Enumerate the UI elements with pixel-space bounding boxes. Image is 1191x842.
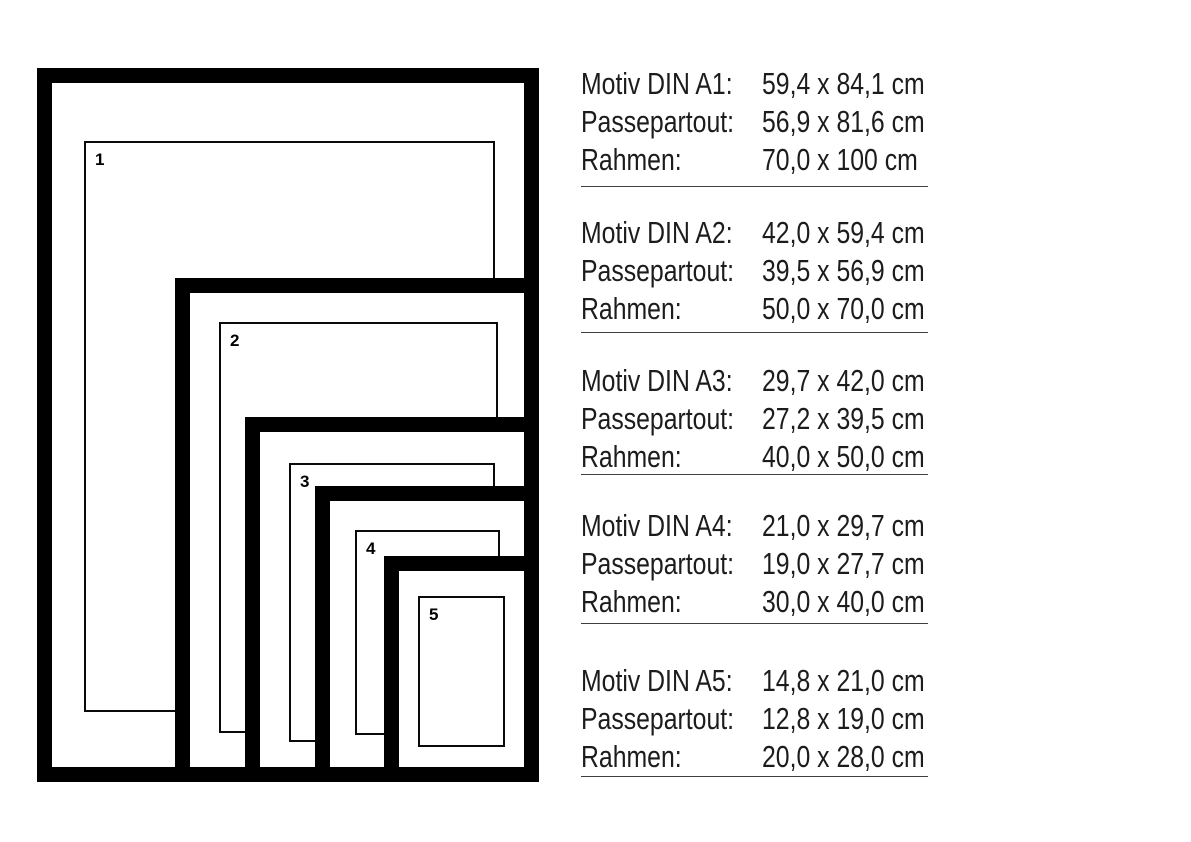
spec-label: Passepartout: (581, 545, 772, 583)
spec-row: Motiv DIN A1: 59,4 x 84,1 cm (581, 65, 928, 103)
spec-label: Motiv DIN A2: (581, 214, 771, 252)
spec-row: Motiv DIN A4: 21,0 x 29,7 cm (581, 507, 928, 545)
spec-block-a3: Motiv DIN A3: 29,7 x 42,0 cm Passepartou… (581, 362, 928, 476)
spec-label: Rahmen: (581, 583, 707, 621)
spec-label: Rahmen: (581, 290, 707, 328)
spec-row: Passepartout: 39,5 x 56,9 cm (581, 252, 928, 290)
spec-value: 12,8 x 19,0 cm (762, 700, 965, 738)
spec-row: Rahmen: 50,0 x 70,0 cm (581, 290, 928, 328)
frame-number-4: 4 (366, 540, 375, 557)
spec-row: Rahmen: 70,0 x 100 cm (581, 141, 928, 179)
spec-block-a4: Motiv DIN A4: 21,0 x 29,7 cm Passepartou… (581, 507, 928, 621)
spec-value: 70,0 x 100 cm (762, 141, 957, 179)
spec-row: Motiv DIN A2: 42,0 x 59,4 cm (581, 214, 928, 252)
separator-line-1 (581, 186, 928, 187)
spec-value: 56,9 x 81,6 cm (762, 103, 965, 141)
frame-number-3: 3 (300, 473, 309, 490)
spec-row: Passepartout: 12,8 x 19,0 cm (581, 700, 928, 738)
spec-value: 21,0 x 29,7 cm (762, 507, 965, 545)
motiv-area-5: 5 (418, 596, 505, 747)
spec-label: Passepartout: (581, 700, 772, 738)
spec-value: 27,2 x 39,5 cm (762, 400, 965, 438)
spec-value: 29,7 x 42,0 cm (762, 362, 965, 400)
spec-row: Motiv DIN A5: 14,8 x 21,0 cm (581, 662, 928, 700)
spec-list: Motiv DIN A1: 59,4 x 84,1 cm Passepartou… (581, 0, 928, 842)
frame-diagram: 1 2 3 4 5 (0, 0, 560, 842)
spec-value: 19,0 x 27,7 cm (762, 545, 965, 583)
frame-size-chart-page: 1 2 3 4 5 Motiv DIN A1: 59,4 x 84,1 cm P… (0, 0, 1191, 842)
spec-row: Passepartout: 56,9 x 81,6 cm (581, 103, 928, 141)
spec-row: Passepartout: 19,0 x 27,7 cm (581, 545, 928, 583)
frame-number-5: 5 (429, 606, 438, 623)
spec-value: 14,8 x 21,0 cm (762, 662, 965, 700)
spec-value: 20,0 x 28,0 cm (762, 738, 965, 776)
spec-row: Rahmen: 40,0 x 50,0 cm (581, 438, 928, 476)
spec-row: Rahmen: 20,0 x 28,0 cm (581, 738, 928, 776)
frame-number-2: 2 (230, 332, 239, 349)
spec-value: 50,0 x 70,0 cm (762, 290, 965, 328)
spec-value: 39,5 x 56,9 cm (762, 252, 965, 290)
spec-block-a1: Motiv DIN A1: 59,4 x 84,1 cm Passepartou… (581, 65, 928, 179)
spec-label: Passepartout: (581, 252, 772, 290)
spec-label: Rahmen: (581, 438, 707, 476)
frame-number-1: 1 (95, 151, 104, 168)
spec-row: Motiv DIN A3: 29,7 x 42,0 cm (581, 362, 928, 400)
spec-label: Motiv DIN A3: (581, 362, 771, 400)
separator-line-3 (581, 474, 928, 475)
spec-value: 59,4 x 84,1 cm (762, 65, 965, 103)
separator-line-4 (581, 623, 928, 624)
spec-row: Passepartout: 27,2 x 39,5 cm (581, 400, 928, 438)
spec-label: Motiv DIN A4: (581, 507, 771, 545)
spec-block-a2: Motiv DIN A2: 42,0 x 59,4 cm Passepartou… (581, 214, 928, 328)
spec-value: 42,0 x 59,4 cm (762, 214, 965, 252)
spec-block-a5: Motiv DIN A5: 14,8 x 21,0 cm Passepartou… (581, 662, 928, 776)
separator-line-2 (581, 332, 928, 333)
spec-value: 30,0 x 40,0 cm (762, 583, 965, 621)
spec-value: 40,0 x 50,0 cm (762, 438, 965, 476)
spec-label: Passepartout: (581, 400, 772, 438)
separator-line-5 (581, 776, 928, 777)
spec-label: Rahmen: (581, 141, 707, 179)
spec-label: Motiv DIN A5: (581, 662, 771, 700)
spec-label: Passepartout: (581, 103, 772, 141)
spec-row: Rahmen: 30,0 x 40,0 cm (581, 583, 928, 621)
spec-label: Motiv DIN A1: (581, 65, 771, 103)
spec-label: Rahmen: (581, 738, 707, 776)
